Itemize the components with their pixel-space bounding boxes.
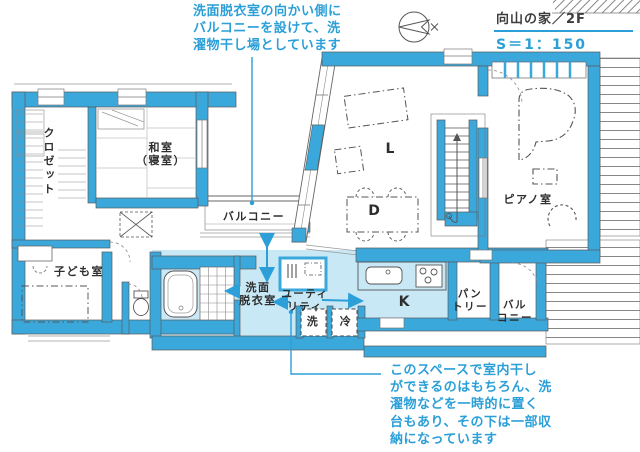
- room-label-line: 和室: [136, 141, 186, 154]
- annotation-line: このスペースで室内干し: [390, 362, 552, 379]
- room-label-line: コニー: [497, 312, 533, 325]
- plan-scale: S＝1：150: [496, 34, 587, 54]
- room-label-living: L: [386, 143, 395, 156]
- room-label-line: リティ: [281, 301, 328, 314]
- room-label-washroom: 洗面 脱衣室: [239, 281, 277, 307]
- annotation-line: 台もあり、その下は一部収: [390, 414, 552, 431]
- annotation-line: 濯物干し場としています: [193, 37, 342, 54]
- toilet: [134, 291, 149, 316]
- room-label-utility: ユーティ リティ: [281, 288, 328, 314]
- room-label-line: パン: [452, 288, 488, 301]
- room-label-pantry: パン トリー: [452, 288, 488, 314]
- room-label-kids-room: 子ども室: [54, 265, 104, 278]
- annotation-line: 納になっています: [390, 431, 552, 448]
- room-label-line: （寝室）: [136, 154, 186, 167]
- room-label-tatami: 和室 （寝室）: [136, 141, 186, 167]
- room-label-closet: クロゼット: [41, 127, 55, 197]
- annotation-line: ができるのはもちろん、洗: [390, 379, 552, 396]
- room-label-line: 洗面: [239, 281, 277, 294]
- room-label-line: トリー: [452, 301, 488, 314]
- room-label-piano-room: ピアノ室: [503, 193, 552, 206]
- utility-counter: [280, 258, 326, 290]
- plan-title: 向山の家／2F: [496, 8, 586, 27]
- annotation-line: 洗面脱衣室の向かい側に: [193, 3, 342, 20]
- room-label-kitchen: K: [399, 296, 410, 309]
- floorplan-page: 洗面脱衣室の向かい側に バルコニーを設けて、洗 濯物干し場としています 向山の家…: [0, 0, 640, 452]
- dining-chairs: [356, 188, 406, 241]
- north-compass-icon: [399, 12, 438, 42]
- room-label-washer: 洗: [307, 315, 320, 328]
- title-underline: [494, 30, 633, 32]
- annotation-balcony-note: 洗面脱衣室の向かい側に バルコニーを設けて、洗 濯物干し場としています: [193, 3, 342, 55]
- room-label-line: ユーティ: [281, 288, 328, 301]
- annotation-line: 濯物などを一時的に置く: [390, 396, 552, 413]
- room-label-dining: D: [368, 205, 380, 218]
- kids-room-furniture: [18, 246, 88, 322]
- room-label-line: バル: [497, 299, 533, 312]
- annotation-laundry-note: このスペースで室内干し ができるのはもちろん、洗 濯物などを一時的に置く 台もあ…: [390, 362, 552, 448]
- room-label-fridge: 冷: [340, 315, 353, 328]
- room-label-line: 脱衣室: [239, 294, 277, 307]
- room-label-balcony-right: バル コニー: [497, 299, 533, 325]
- room-label-balcony-left: バルコニー: [223, 210, 285, 223]
- void-x-box: [120, 212, 152, 237]
- annotation-line: バルコニーを設けて、洗: [193, 20, 342, 37]
- diagonal-wall: [292, 58, 336, 242]
